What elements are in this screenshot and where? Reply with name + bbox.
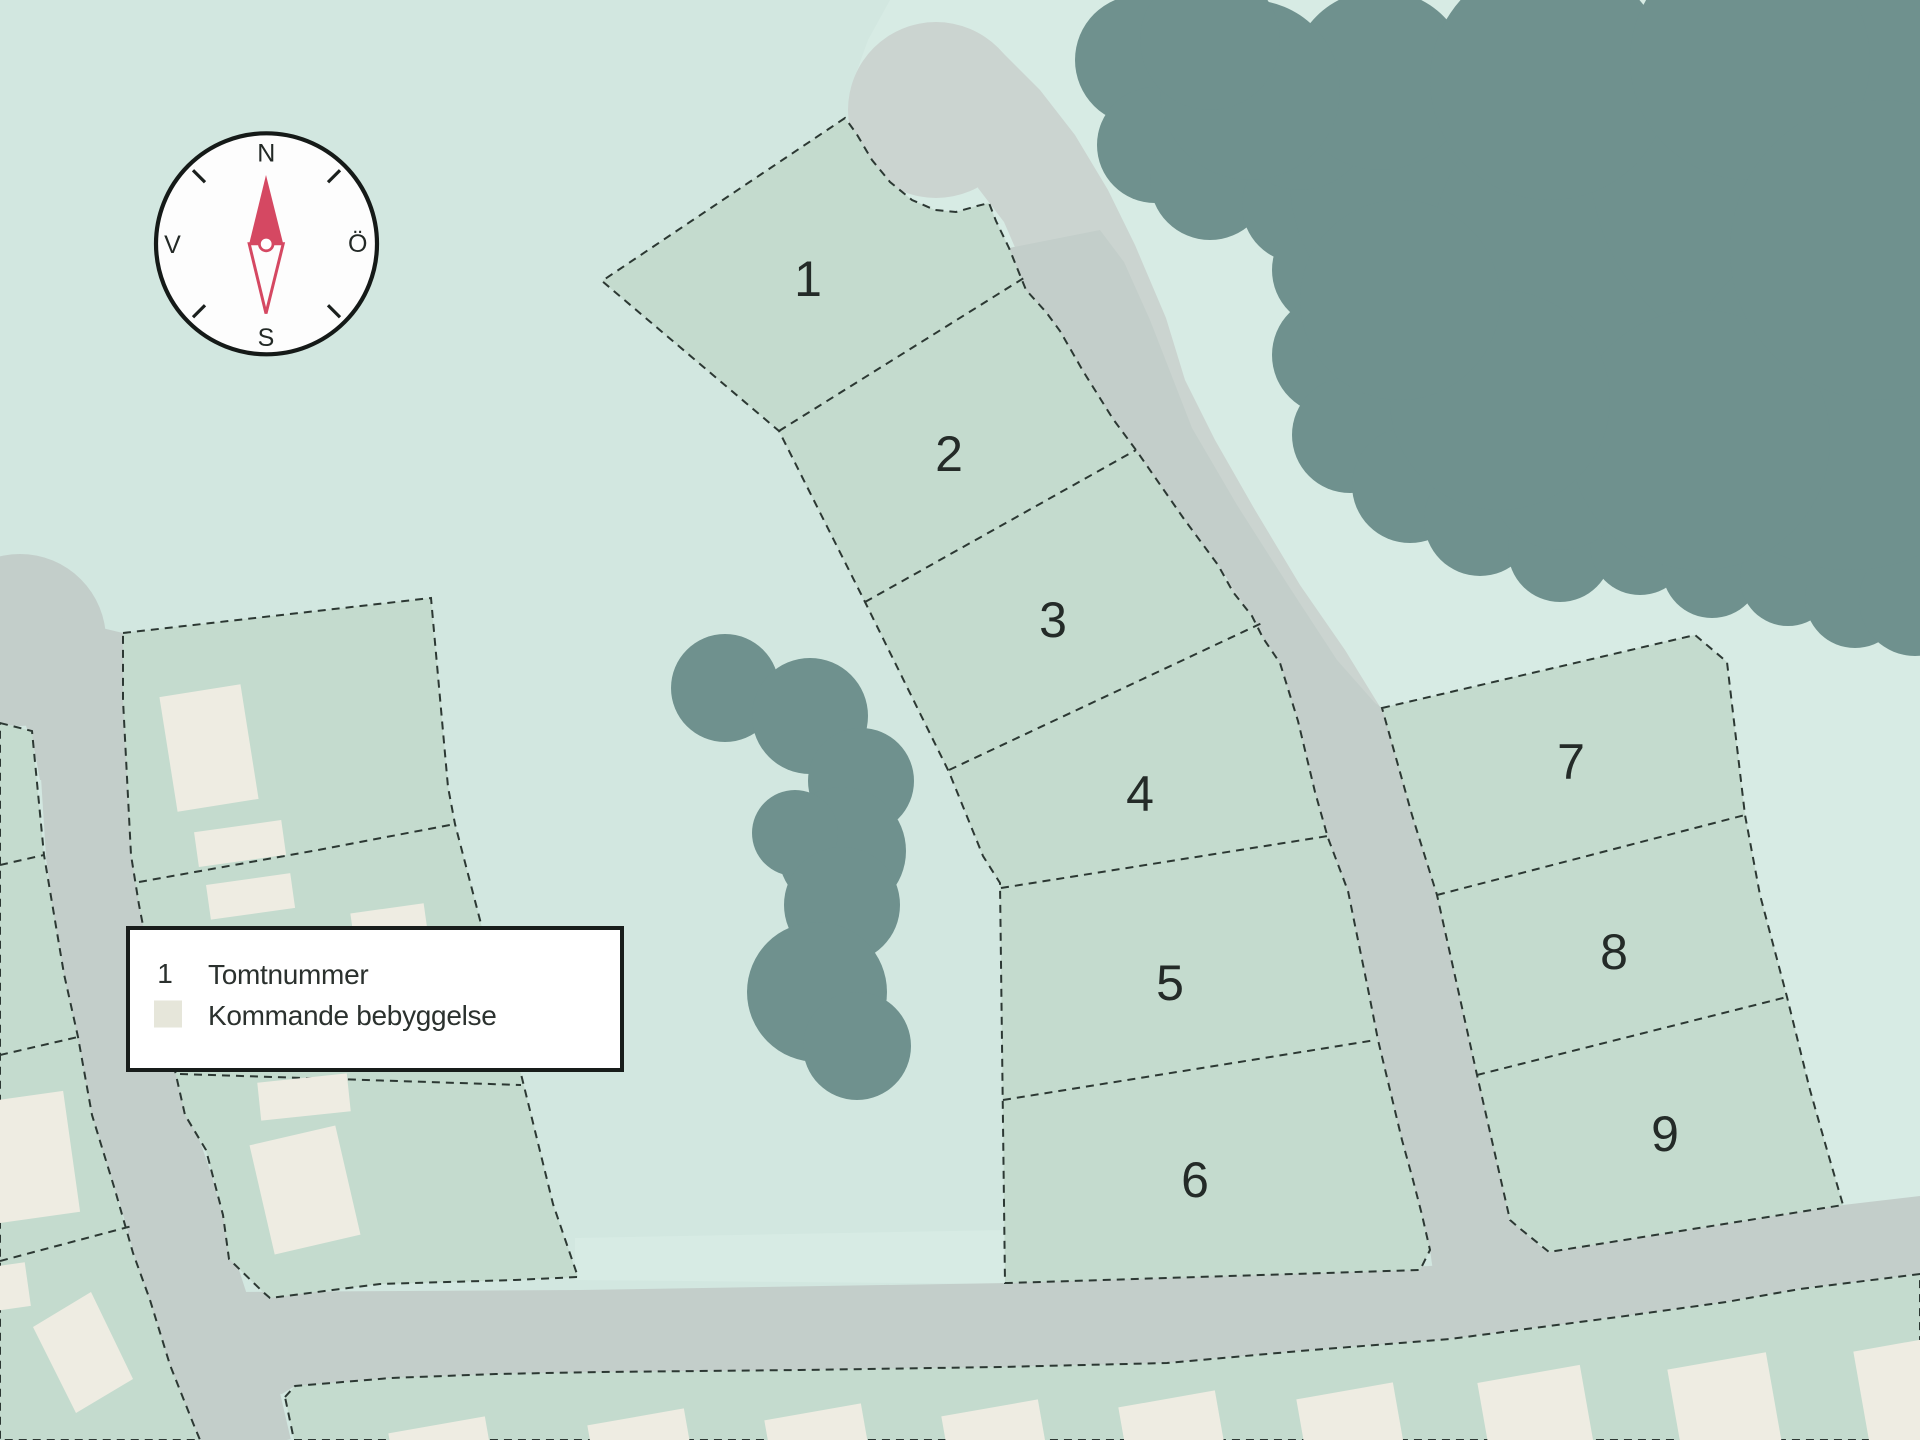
svg-text:6: 6 bbox=[1181, 1152, 1209, 1208]
svg-text:S: S bbox=[258, 324, 275, 352]
svg-text:Ö: Ö bbox=[348, 230, 367, 258]
svg-text:1: 1 bbox=[794, 251, 822, 307]
svg-text:8: 8 bbox=[1600, 924, 1628, 980]
svg-text:4: 4 bbox=[1126, 766, 1154, 822]
svg-text:7: 7 bbox=[1557, 734, 1585, 790]
svg-text:V: V bbox=[164, 231, 181, 259]
svg-text:5: 5 bbox=[1156, 955, 1184, 1011]
svg-text:2: 2 bbox=[935, 426, 963, 482]
svg-text:Tomtnummer: Tomtnummer bbox=[208, 959, 368, 990]
svg-text:Kommande bebyggelse: Kommande bebyggelse bbox=[208, 1000, 497, 1031]
svg-text:3: 3 bbox=[1039, 592, 1067, 648]
svg-text:N: N bbox=[257, 140, 275, 168]
svg-text:9: 9 bbox=[1651, 1106, 1679, 1162]
svg-text:1: 1 bbox=[157, 958, 173, 989]
